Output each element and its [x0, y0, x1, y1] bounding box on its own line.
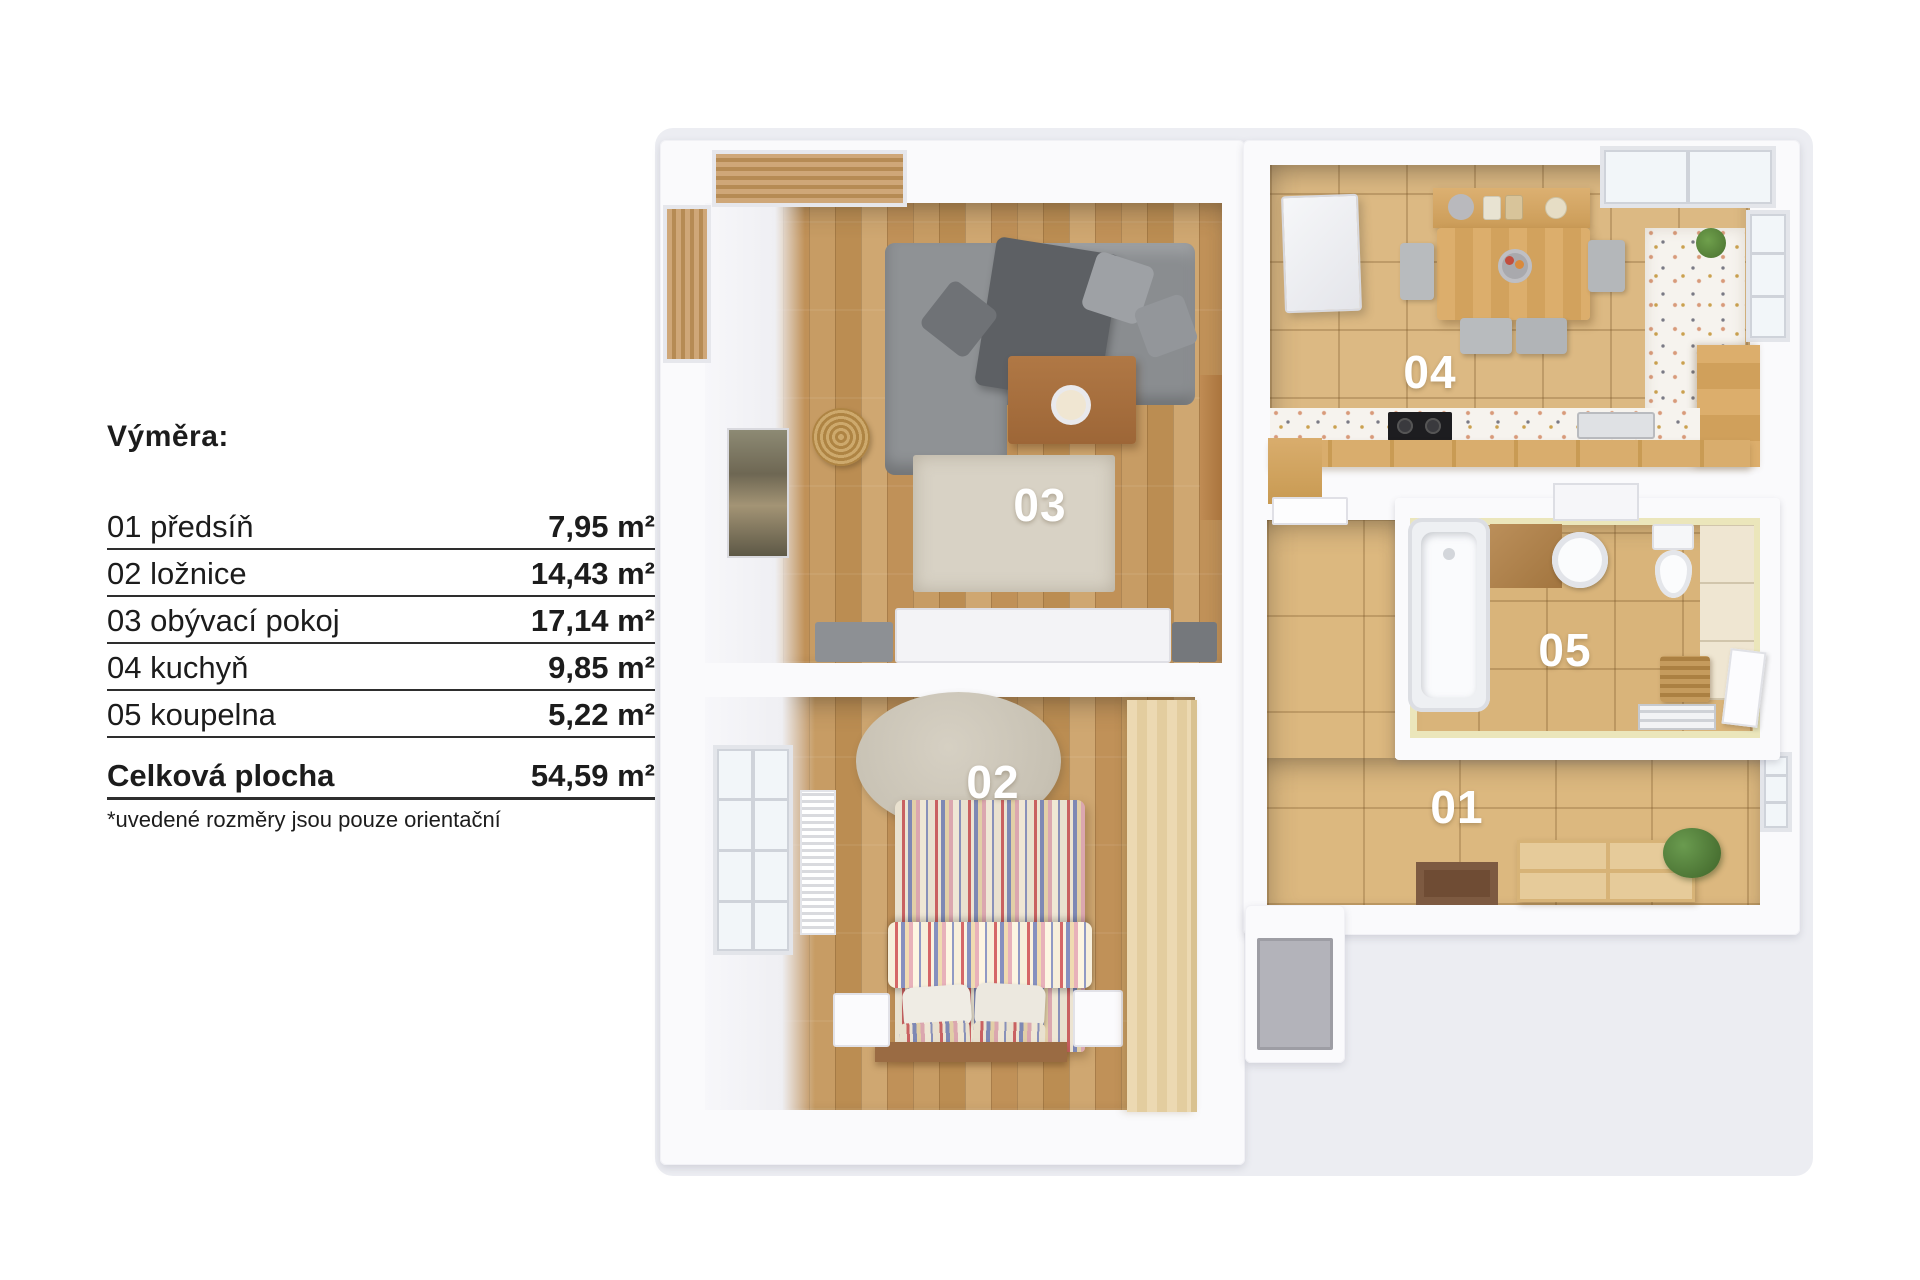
floorplan-page: Výměra: 01 předsíň 7,95 m² 02 ložnice 14… — [0, 0, 1920, 1280]
hallway-door-top — [1272, 497, 1348, 525]
area-legend: Výměra: 01 předsíň 7,95 m² 02 ložnice 14… — [107, 420, 655, 833]
room-label-bathroom: 05 — [1538, 623, 1591, 677]
radiator — [800, 790, 836, 935]
nightstand-left — [833, 993, 890, 1047]
shelf-candle — [1545, 197, 1567, 219]
total-label: Celková plocha — [107, 758, 334, 794]
kitchen-bench — [1268, 438, 1322, 504]
wicker-vase — [812, 408, 870, 466]
room-name: 05 koupelna — [107, 697, 276, 733]
speaker-right — [1172, 622, 1217, 662]
wall-art — [727, 428, 789, 558]
shelf-jar — [1483, 196, 1501, 220]
room-name: 03 obývací pokoj — [107, 603, 340, 639]
door-mat — [1416, 862, 1498, 905]
cooktop-burner — [1397, 418, 1413, 434]
kitchen-cabinet-fronts — [1270, 440, 1750, 467]
chair — [1400, 243, 1434, 300]
bathtub-drain — [1443, 548, 1455, 560]
legend-row-living: 03 obývací pokoj 17,14 m² — [107, 597, 655, 644]
laundry-basket — [1660, 656, 1710, 702]
legend-row-bathroom: 05 koupelna 5,22 m² — [107, 691, 655, 738]
legend-row-kitchen: 04 kuchyň 9,85 m² — [107, 644, 655, 691]
coffee-cup — [1056, 390, 1086, 420]
chair — [1588, 240, 1625, 292]
wardrobe — [1127, 700, 1197, 1112]
total-value: 54,59 m² — [531, 758, 655, 794]
room-label-kitchen: 04 — [1403, 345, 1456, 399]
legend-row-hall: 01 předsíň 7,95 m² — [107, 503, 655, 550]
room-label-living: 03 — [1013, 478, 1066, 532]
speaker-left — [815, 622, 893, 662]
kitchen-window-top — [1600, 146, 1776, 208]
kitchen-window-right — [1746, 210, 1790, 342]
chair — [1516, 318, 1567, 354]
cooktop-burner — [1425, 418, 1441, 434]
hallway-window — [1760, 752, 1792, 832]
towel-rack — [1638, 704, 1716, 730]
bathroom-sink — [1552, 532, 1608, 588]
bedroom-window — [713, 745, 793, 955]
tv-sideboard — [895, 608, 1171, 663]
legend-footnote: *uvedené rozměry jsou pouze orientační — [107, 807, 655, 833]
fruit — [1515, 260, 1524, 269]
hallway-plant — [1663, 828, 1721, 878]
fridge — [1281, 194, 1362, 314]
bed-platform — [875, 1042, 1067, 1062]
wall-shelf — [1200, 375, 1222, 520]
kitchen-plant — [1696, 228, 1726, 258]
bathroom-cabinet — [1553, 483, 1639, 521]
fruit — [1505, 256, 1514, 265]
living-window-top — [712, 150, 907, 207]
shelf-jar — [1505, 195, 1523, 220]
room-area: 17,14 m² — [531, 603, 655, 639]
toilet-tank — [1652, 524, 1694, 550]
kitchen-sink — [1577, 412, 1655, 439]
entry-door — [1257, 938, 1333, 1050]
room-name: 02 ložnice — [107, 556, 247, 592]
room-area: 14,43 m² — [531, 556, 655, 592]
bed-bolster — [888, 922, 1092, 988]
room-area: 5,22 m² — [548, 697, 655, 733]
room-area: 9,85 m² — [548, 650, 655, 686]
room-label-bedroom: 02 — [966, 755, 1019, 809]
room-label-hallway: 01 — [1430, 780, 1483, 834]
legend-rows: 01 předsíň 7,95 m² 02 ložnice 14,43 m² 0… — [107, 503, 655, 738]
legend-title: Výměra: — [107, 420, 655, 454]
room-name: 04 kuchyň — [107, 650, 248, 686]
nightstand-right — [1073, 990, 1123, 1047]
legend-row-bedroom: 02 ložnice 14,43 m² — [107, 550, 655, 597]
living-window-left — [663, 205, 711, 363]
shelf-bowl — [1448, 194, 1474, 220]
legend-total-row: Celková plocha 54,59 m² — [107, 756, 655, 800]
chair — [1460, 318, 1512, 354]
room-area: 7,95 m² — [548, 509, 655, 545]
room-name: 01 předsíň — [107, 509, 254, 545]
